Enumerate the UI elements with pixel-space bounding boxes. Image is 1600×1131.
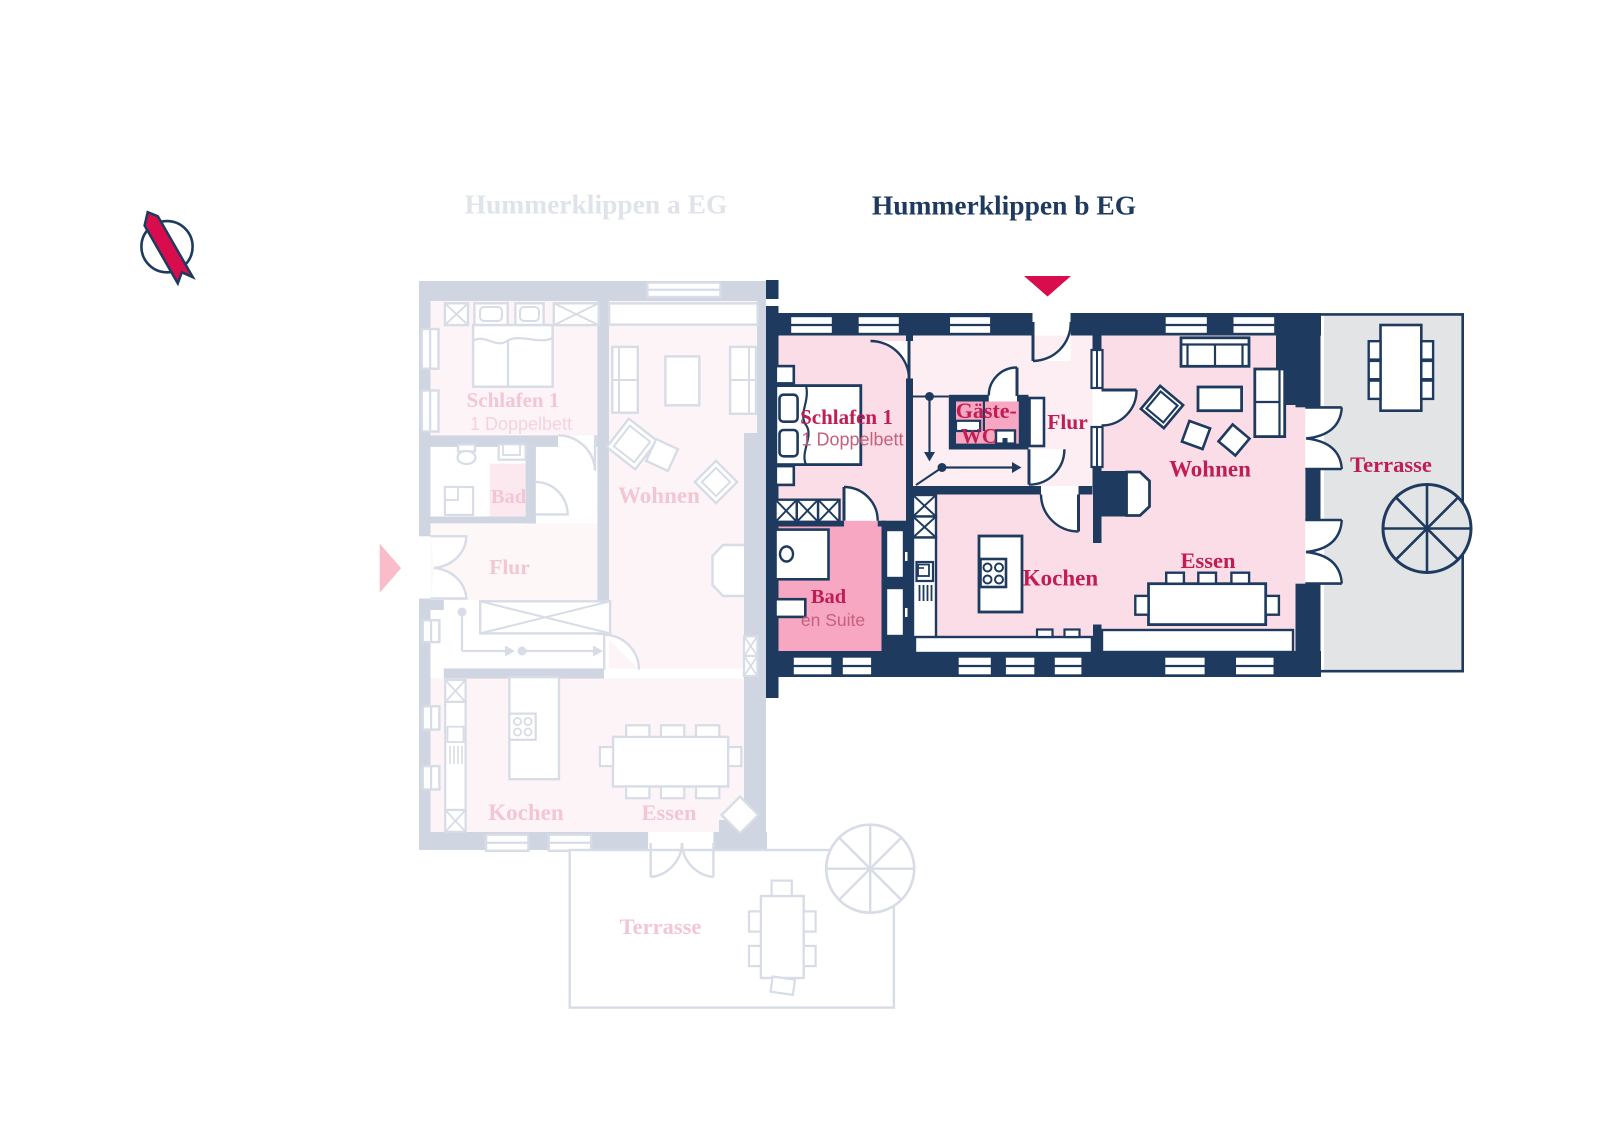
svg-text:Schlafen 1: Schlafen 1 xyxy=(467,388,560,412)
svg-text:Flur: Flur xyxy=(489,555,530,579)
svg-text:Kochen: Kochen xyxy=(1023,566,1099,591)
svg-text:Kochen: Kochen xyxy=(488,800,564,825)
svg-text:1 Doppelbett: 1 Doppelbett xyxy=(801,430,903,450)
svg-text:Bad: Bad xyxy=(811,586,847,608)
svg-text:Bad: Bad xyxy=(491,486,527,508)
svg-text:Wohnen: Wohnen xyxy=(1169,457,1251,482)
svg-text:Essen: Essen xyxy=(1180,548,1236,573)
svg-text:Hummerklippen b EG: Hummerklippen b EG xyxy=(872,190,1136,221)
svg-text:WC: WC xyxy=(961,424,997,448)
svg-text:Terrasse: Terrasse xyxy=(1350,452,1432,477)
svg-text:Gäste-: Gäste- xyxy=(956,398,1017,423)
svg-text:Flur: Flur xyxy=(1047,410,1088,434)
svg-text:en Suite: en Suite xyxy=(801,610,865,630)
svg-text:Essen: Essen xyxy=(641,800,697,825)
svg-text:Terrasse: Terrasse xyxy=(620,914,702,939)
svg-text:1 Doppelbett: 1 Doppelbett xyxy=(470,414,572,434)
svg-text:Wohnen: Wohnen xyxy=(618,483,700,508)
svg-text:Schlafen 1: Schlafen 1 xyxy=(800,405,893,429)
svg-text:Hummerklippen a EG: Hummerklippen a EG xyxy=(465,189,728,220)
